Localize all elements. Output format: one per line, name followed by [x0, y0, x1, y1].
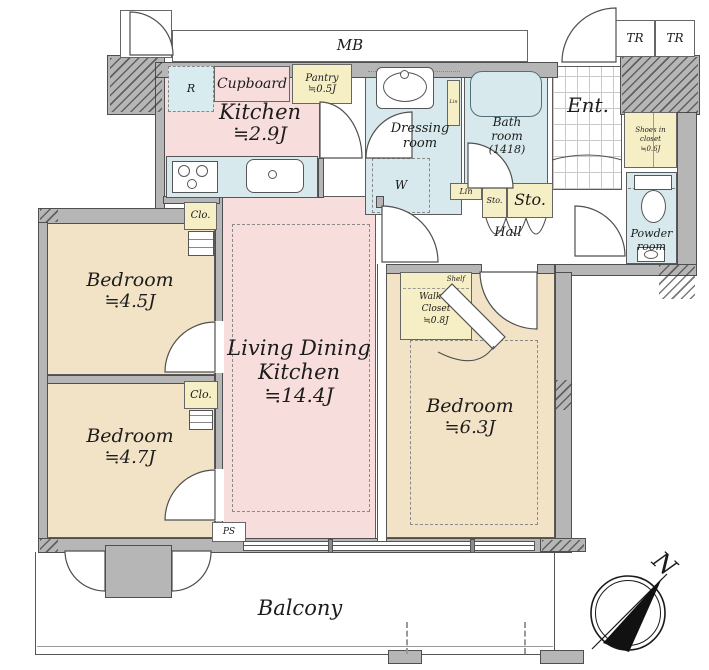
- powder-line1: Powder: [627, 228, 676, 241]
- powder-hall-door: [575, 206, 625, 256]
- kitchen-label: Kitchen ≒2.9J: [193, 100, 327, 146]
- dressing-line1: Dressing: [380, 122, 460, 137]
- bath-line2: room: [472, 130, 542, 144]
- bedroom1-size: ≒4.5J: [60, 292, 200, 313]
- balcony-label: Balcony: [240, 596, 360, 620]
- ldk-line1: Living Dining: [226, 336, 372, 360]
- kitchen-name: Kitchen: [193, 100, 327, 124]
- bedroom2-size: ≒4.7J: [60, 448, 200, 469]
- kitchen-size: ≒2.9J: [193, 124, 327, 146]
- walkin-closet-door-arc: [438, 346, 494, 361]
- bedroom1-door: [165, 322, 215, 372]
- balcony-door-left: [65, 551, 105, 591]
- bath-line1: Bath: [472, 116, 542, 130]
- dressing-room-label: Dressing room: [380, 122, 460, 152]
- ldk-size: ≒14.4J: [226, 384, 372, 407]
- bedroom2-door: [165, 470, 215, 520]
- compass: [591, 574, 667, 652]
- dressing-line2: room: [380, 137, 460, 152]
- trunk-left-door: [130, 12, 173, 55]
- bedroom2-name: Bedroom: [60, 426, 200, 448]
- bedroom2-label: Bedroom ≒4.7J: [60, 426, 200, 469]
- entrance-door: [562, 8, 616, 62]
- ldk-label: Living Dining Kitchen ≒14.4J: [226, 336, 372, 407]
- powder-room-label: Powder room: [627, 228, 676, 253]
- floor-plan: MB TR TR TR Pantry ≒0.5J Cupboard R W Li…: [0, 0, 709, 670]
- powder-line2: room: [627, 241, 676, 254]
- bedroom3-name: Bedroom: [400, 396, 540, 418]
- bath-room-label: Bath room (1418): [472, 116, 542, 156]
- hall-label: Hall: [478, 226, 538, 241]
- balcony-door-right: [172, 551, 211, 591]
- bedroom1-name: Bedroom: [60, 270, 200, 292]
- bedroom3-size: ≒6.3J: [400, 418, 540, 439]
- ldk-door: [382, 206, 438, 262]
- bath-line3: (1418): [472, 144, 542, 157]
- bedroom1-label: Bedroom ≒4.5J: [60, 270, 200, 313]
- entrance-label: Ent.: [558, 94, 618, 117]
- entrance-step-line: [552, 155, 622, 160]
- bedroom3-label: Bedroom ≒6.3J: [400, 396, 540, 439]
- ldk-line2: Kitchen: [226, 360, 372, 384]
